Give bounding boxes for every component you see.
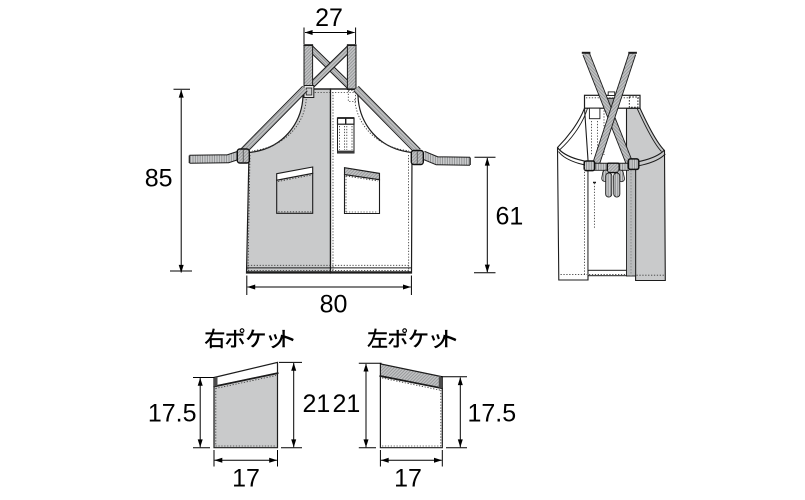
svg-text:17: 17: [232, 465, 260, 493]
svg-text:17: 17: [394, 465, 422, 493]
svg-text:21: 21: [303, 390, 331, 418]
svg-text:21: 21: [332, 390, 360, 418]
svg-text:27: 27: [315, 4, 343, 32]
svg-text:17.5: 17.5: [148, 400, 197, 428]
svg-text:61: 61: [496, 203, 524, 231]
svg-text:80: 80: [320, 291, 348, 319]
svg-text:17.5: 17.5: [468, 400, 517, 428]
svg-text:85: 85: [145, 165, 173, 193]
